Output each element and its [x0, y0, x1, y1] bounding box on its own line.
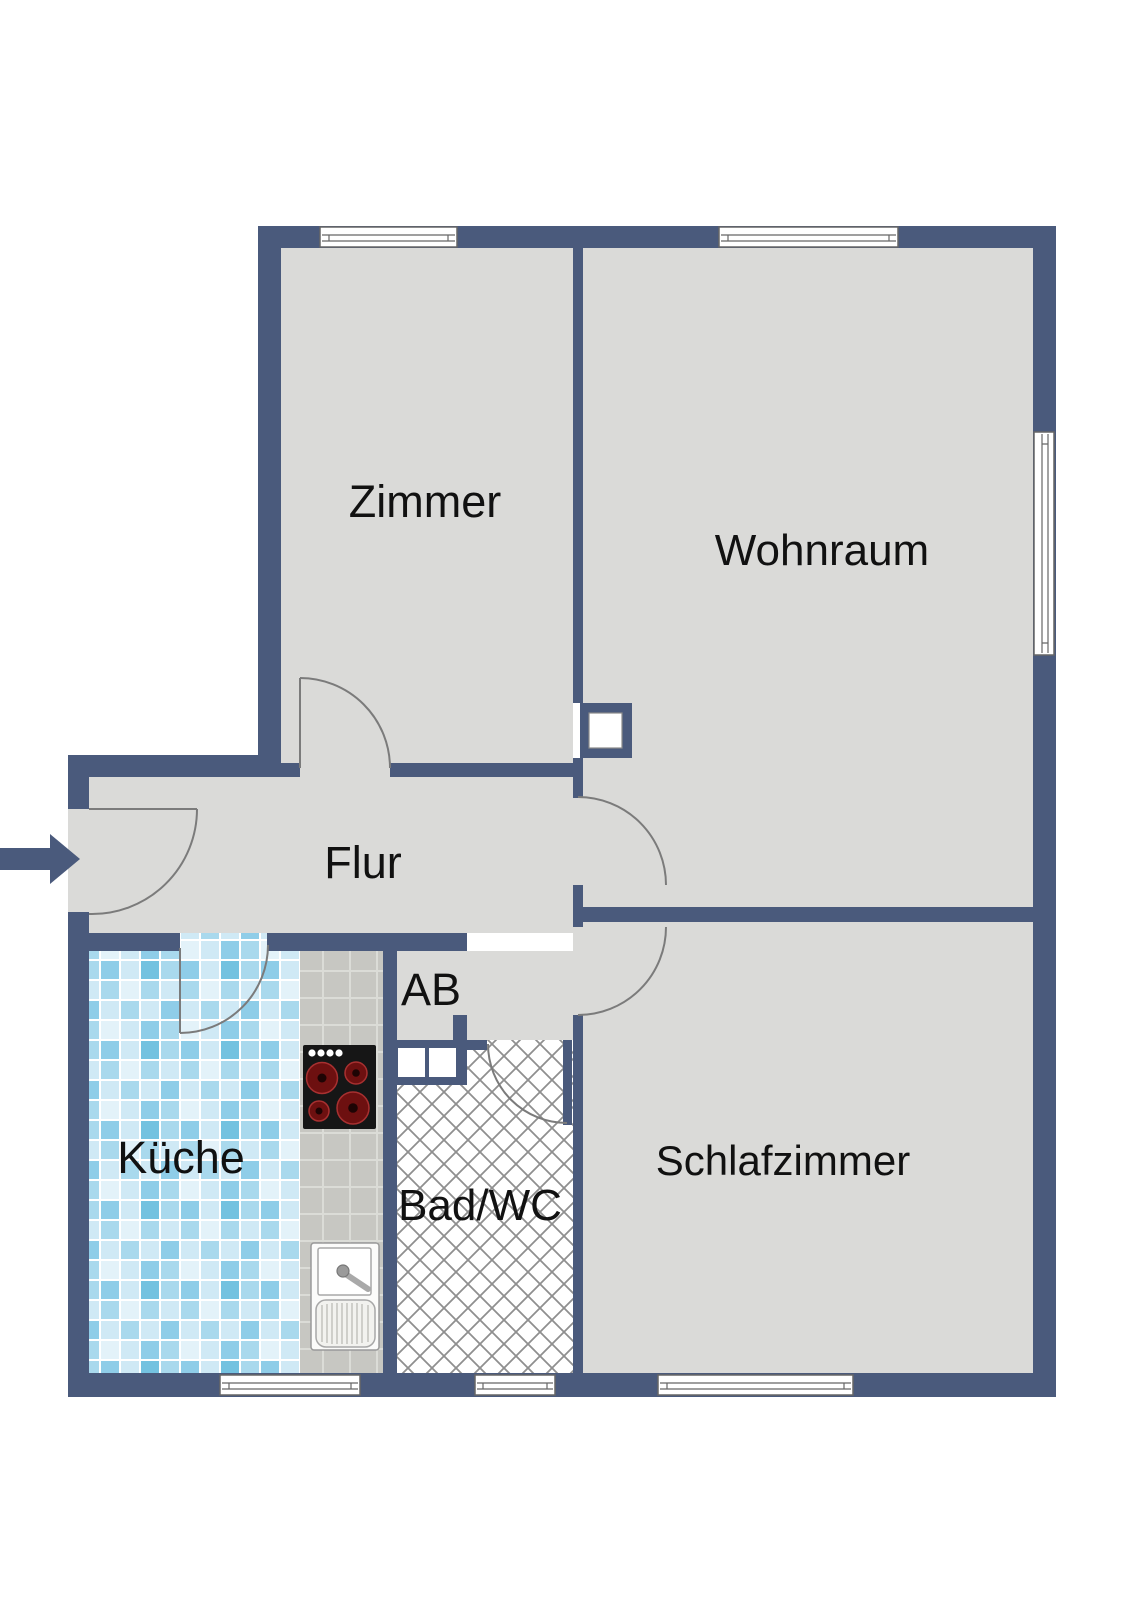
bottom-exterior-wall: [68, 1373, 1056, 1397]
room-label-kueche: Küche: [117, 1132, 245, 1183]
room-label-zimmer: Zimmer: [349, 476, 501, 527]
door-pier-between-doors: [573, 885, 583, 927]
shaft-box-icon: [429, 1048, 456, 1077]
schlafzimmer-doorway-floor: [573, 927, 583, 1015]
wohnraum-top-window: [719, 227, 898, 247]
kueche-ab-north-wall: [267, 933, 467, 951]
bad-schlafzimmer-wall: [573, 1015, 583, 1373]
wohnraum-right-window: [1034, 432, 1054, 655]
room-label-wohnraum: Wohnraum: [715, 526, 929, 575]
right-exterior-wall: [1033, 226, 1056, 1397]
kueche-north-wall-left: [89, 933, 180, 951]
kueche-bad-wall: [383, 951, 397, 1373]
room-label-bad-wc: Bad/WC: [398, 1181, 562, 1230]
central-wall-below-shaft: [573, 758, 583, 798]
schlafzimmer-window: [658, 1375, 853, 1395]
zimmer-south-wall-right: [390, 763, 573, 777]
left-exterior-wall-lower: [68, 912, 89, 1397]
shaft-box-icon: [398, 1048, 425, 1077]
floor-plan-svg: Zimmer Wohnraum Flur AB Küche Bad/WC Sch…: [0, 0, 1131, 1600]
zimmer-window: [320, 227, 457, 247]
chimney-shaft-icon: [589, 713, 622, 748]
room-label-abstellraum: AB: [401, 964, 461, 1015]
bad-wc-window: [475, 1375, 555, 1395]
zimmer-left-wall: [258, 226, 281, 777]
zimmer-doorway-floor: [300, 763, 390, 777]
bad-door-lintel: [467, 1040, 487, 1050]
kueche-doorway-floor: [180, 933, 267, 951]
wohnraum-schlafzimmer-wall: [583, 907, 1033, 922]
wohnraum-floor: [583, 248, 1033, 907]
sink-icon: [311, 1243, 379, 1350]
room-label-schlafzimmer: Schlafzimmer: [656, 1137, 910, 1184]
room-label-flur: Flur: [324, 837, 402, 888]
flur-north-wall: [68, 755, 281, 777]
zimmer-south-wall-left: [281, 763, 300, 777]
zimmer-wohnraum-wall: [573, 248, 583, 703]
stove-icon: [303, 1045, 376, 1129]
wohnraum-doorway-floor: [573, 798, 583, 885]
bad-wc-door-leaf: [563, 1040, 572, 1125]
floor-plan-page: Zimmer Wohnraum Flur AB Küche Bad/WC Sch…: [0, 0, 1131, 1600]
kueche-window: [220, 1375, 360, 1395]
